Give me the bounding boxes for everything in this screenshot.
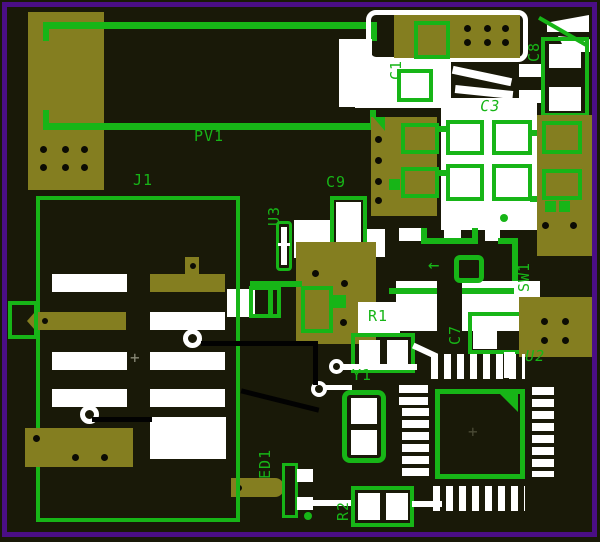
polarity-mark xyxy=(278,243,290,246)
signal-trace xyxy=(313,341,318,385)
drill-dot xyxy=(81,164,88,171)
component-pad-outline[interactable] xyxy=(542,169,582,200)
drill-dot xyxy=(541,337,548,344)
component-pad-outline[interactable] xyxy=(401,123,439,154)
component-pad-outline[interactable] xyxy=(301,286,333,333)
label-u2: U2 xyxy=(524,349,547,364)
drill-dot xyxy=(40,164,47,171)
copper-pad xyxy=(359,340,380,366)
component-outline-led1[interactable] xyxy=(282,463,298,518)
drill-dot xyxy=(375,197,382,204)
silk-mark xyxy=(559,201,570,212)
copper-pad xyxy=(351,430,377,455)
center-mark: + xyxy=(468,424,478,440)
copper-pad xyxy=(387,340,408,366)
drill-dot xyxy=(341,280,348,287)
drill-dot xyxy=(502,39,509,46)
ic-pad-column-left xyxy=(402,408,429,478)
drill-dot xyxy=(62,146,69,153)
via-ring xyxy=(329,359,344,374)
connector-pad xyxy=(52,352,127,370)
label-pv1: PV1 xyxy=(194,129,224,144)
signal-trace xyxy=(241,388,320,412)
copper-pad xyxy=(399,228,421,241)
ic-pad-column-right xyxy=(532,387,554,477)
connector-pad xyxy=(52,274,127,292)
copper-pad xyxy=(281,227,287,265)
drill-dot xyxy=(33,435,40,442)
label-c8: C8 xyxy=(527,42,542,62)
component-pad-outline[interactable] xyxy=(446,120,484,155)
drill-dot xyxy=(101,454,108,461)
silk-trace xyxy=(389,288,437,294)
label-c1: C1 xyxy=(389,60,404,80)
copper-pad xyxy=(386,493,408,520)
copper-pad xyxy=(297,469,313,482)
silk-trace xyxy=(43,110,49,124)
pcb-layout-view: PV1 C1 C8 C3 U3 xyxy=(0,0,600,542)
drill-dot xyxy=(40,146,47,153)
drill-dot xyxy=(570,222,577,229)
connector-pad xyxy=(150,352,225,370)
drill-dot xyxy=(190,263,196,269)
component-pad-outline[interactable] xyxy=(492,120,532,155)
label-r1: R1 xyxy=(368,309,388,324)
drill-dot xyxy=(375,136,382,143)
drill-dot xyxy=(375,157,382,164)
drill-dot xyxy=(562,337,569,344)
silk-trace xyxy=(472,228,478,238)
copper-pad xyxy=(399,385,428,393)
copper-pour xyxy=(25,428,133,467)
component-outline[interactable] xyxy=(414,21,450,59)
component-pad-outline[interactable] xyxy=(542,121,582,154)
drill-dot xyxy=(541,318,548,325)
silk-mark xyxy=(332,295,346,308)
silk-mark xyxy=(545,201,556,212)
silk-trace xyxy=(250,281,302,287)
drill-dot xyxy=(312,270,319,277)
copper-pad xyxy=(150,417,226,459)
copper-pour xyxy=(394,15,520,58)
via-ring xyxy=(183,329,202,348)
component-pad-outline[interactable] xyxy=(401,167,439,198)
label-j1: J1 xyxy=(133,173,153,188)
label-sw1: SW1 xyxy=(517,262,532,292)
label-c7: C7 xyxy=(448,325,463,345)
connector-pad xyxy=(150,389,225,407)
drill-dot xyxy=(81,146,88,153)
copper-pad xyxy=(297,497,313,510)
label-y1: Y1 xyxy=(352,368,372,383)
drill-dot xyxy=(62,164,69,171)
silk-trace xyxy=(268,287,273,315)
copper-trace xyxy=(412,343,438,359)
center-mark: + xyxy=(130,350,140,366)
drill-dot xyxy=(42,318,48,324)
silk-dot xyxy=(500,214,508,222)
drill-dot xyxy=(502,25,509,32)
label-c3: C3 xyxy=(479,99,502,114)
signal-trace xyxy=(201,341,316,346)
component-pad-outline[interactable] xyxy=(249,286,281,318)
silk-trace xyxy=(421,228,427,238)
silk-trace xyxy=(421,238,478,244)
label-r2: R2 xyxy=(336,501,351,521)
copper-pad xyxy=(358,493,380,520)
component-pad-outline[interactable] xyxy=(8,301,38,339)
component-pad-outline[interactable] xyxy=(446,164,484,201)
drill-dot xyxy=(72,454,79,461)
copper-pad xyxy=(399,397,428,405)
copper-pad xyxy=(549,44,581,68)
ic-pad-row-top xyxy=(431,354,525,379)
switch-actuator-outline[interactable] xyxy=(454,255,484,283)
drill-dot xyxy=(562,318,569,325)
label-c9: C9 xyxy=(326,175,346,190)
silk-trace xyxy=(43,22,49,41)
signal-trace xyxy=(92,417,152,422)
ic-pad-row-bottom xyxy=(433,486,525,511)
arrow-icon: ← xyxy=(428,256,439,275)
drill-dot xyxy=(484,39,491,46)
copper-pad xyxy=(351,398,377,424)
component-pad-outline[interactable] xyxy=(492,164,532,201)
connector-pad xyxy=(150,274,225,292)
silk-trace xyxy=(43,22,375,29)
copper-trace xyxy=(452,66,512,86)
drill-dot xyxy=(542,222,549,229)
drill-dot xyxy=(464,25,471,32)
connector-pad xyxy=(150,312,225,330)
silk-dot xyxy=(304,512,312,520)
copper-trace xyxy=(412,501,442,507)
drill-dot xyxy=(340,319,347,326)
drill-dot xyxy=(464,39,471,46)
copper-pad xyxy=(549,87,581,111)
component-outline-c9[interactable] xyxy=(330,196,367,248)
drill-dot xyxy=(484,25,491,32)
copper-pad xyxy=(473,317,497,349)
silk-mark xyxy=(389,179,400,190)
drill-dot xyxy=(375,178,382,185)
silk-trace xyxy=(462,288,514,294)
